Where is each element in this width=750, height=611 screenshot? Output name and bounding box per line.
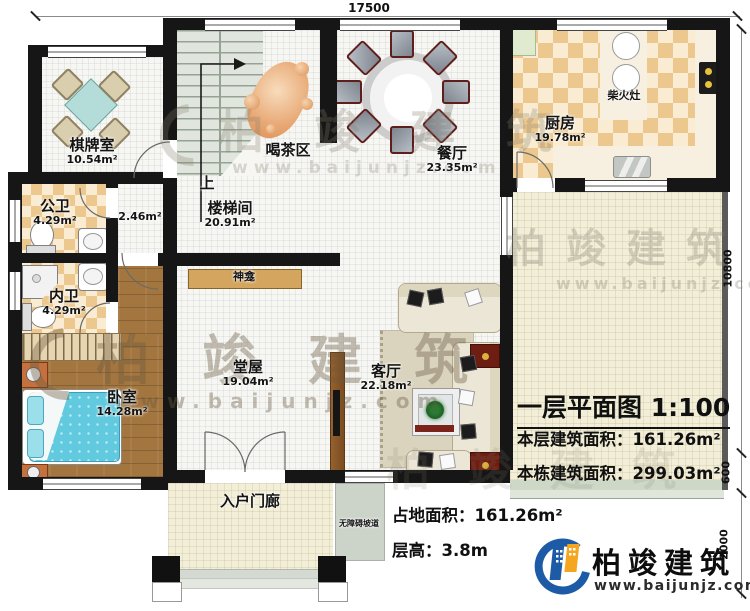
brand-logo-icon xyxy=(534,538,592,600)
floor-area-line: 本层建筑面积：161.26m² xyxy=(517,426,721,450)
building-area-line: 本栋建筑面积：299.03m² xyxy=(517,460,721,484)
room-label-porch: 入户门廊 xyxy=(220,494,280,510)
door-arc xyxy=(134,142,170,178)
floor-plan-canvas: 棋牌室10.54m² 喝茶区 餐厅23.35m² 厨房19.78m² 柴火灶 公… xyxy=(0,0,750,611)
land-area-line: 占地面积：161.26m² xyxy=(392,502,563,526)
area-label-small-hall: 2.46m² xyxy=(118,211,161,223)
door-arc xyxy=(517,152,553,188)
floor-area-value: 161.26m² xyxy=(633,430,721,449)
brand-name: 柏竣建筑 xyxy=(592,540,736,582)
plan-scale: 1:100 xyxy=(651,393,731,422)
room-label-wood-stove: 柴火灶 xyxy=(608,90,641,102)
room-label-stairwell: 楼梯间20.91m² xyxy=(204,201,255,228)
room-label-chess: 棋牌室10.54m² xyxy=(66,138,117,165)
dimension-line-right xyxy=(741,28,742,598)
door-arc xyxy=(245,432,285,472)
room-label-kitchen: 厨房19.78m² xyxy=(534,116,585,143)
door-arc xyxy=(80,188,110,218)
brand-logo: 柏竣建筑 www.baijunjz.com xyxy=(534,538,744,604)
label-ramp: 无障碍坡道 xyxy=(339,520,379,528)
door-arc xyxy=(205,432,245,472)
dimension-line-top xyxy=(35,16,740,17)
dimension-right-upper: 10800 xyxy=(722,241,735,297)
dimension-right-mid: 600 xyxy=(720,445,733,501)
building-area-value: 299.03m² xyxy=(633,464,721,483)
room-label-inner-bath: 内卫4.29m² xyxy=(42,289,85,316)
floor-height-value: 3.8m xyxy=(442,541,488,560)
room-label-living: 客厅22.18m² xyxy=(360,364,411,391)
plan-title: 一层平面图 1:100 xyxy=(517,388,730,429)
brand-url: www.baijunjz.com xyxy=(594,578,750,594)
label-shrine: 神龛 xyxy=(233,271,255,283)
dimension-top-value: 17500 xyxy=(340,1,398,15)
room-label-dining: 餐厅23.35m² xyxy=(426,146,477,173)
stair-arrow-head xyxy=(234,58,246,70)
room-label-main-hall: 堂屋19.04m² xyxy=(222,360,273,387)
door-arc xyxy=(122,253,158,289)
floor-height-line: 层高：3.8m xyxy=(392,537,488,561)
land-area-value: 161.26m² xyxy=(475,506,563,525)
room-label-public-bath: 公卫4.29m² xyxy=(33,199,76,226)
room-label-tea: 喝茶区 xyxy=(265,143,310,159)
room-label-bedroom: 卧室14.28m² xyxy=(96,390,147,417)
label-stairs-up: 上 xyxy=(199,176,214,192)
